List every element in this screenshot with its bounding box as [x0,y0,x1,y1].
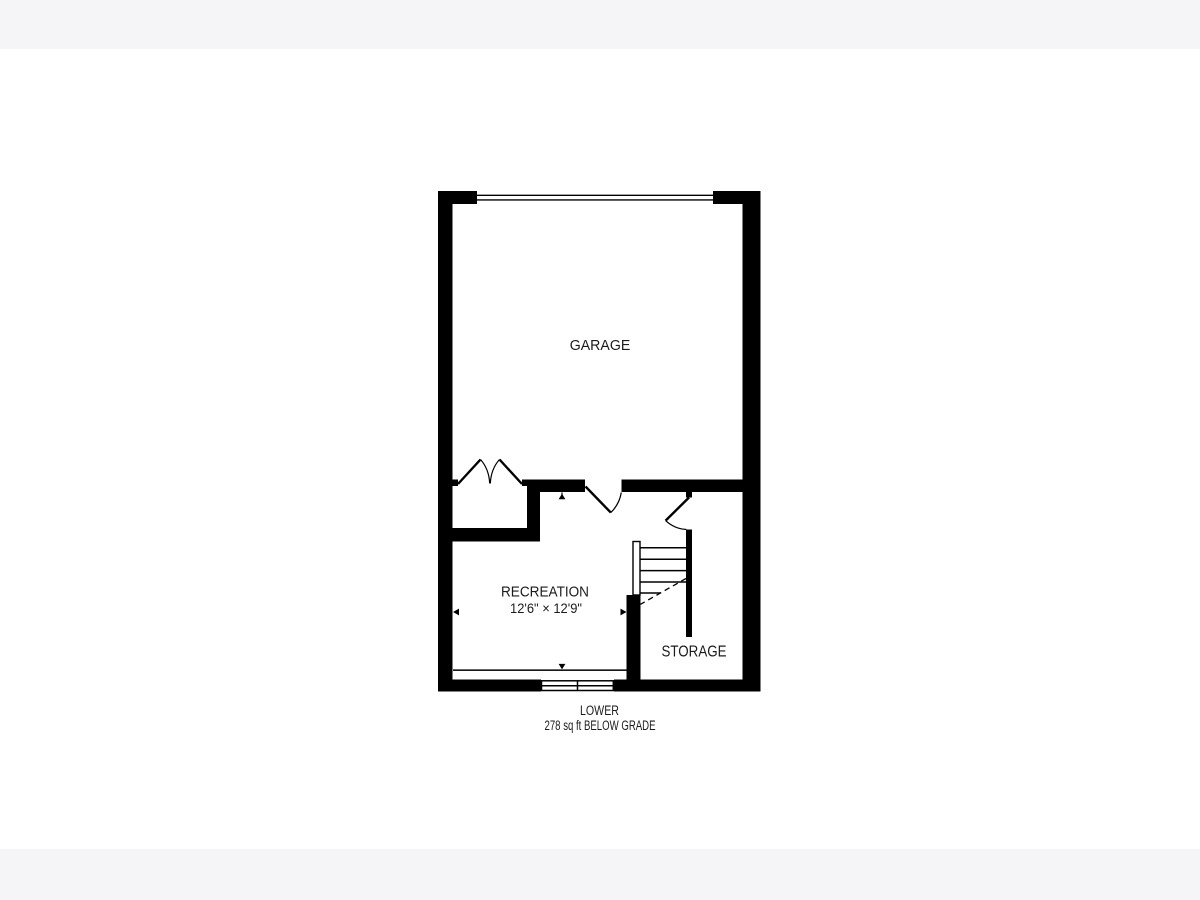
svg-text:278 sq ft BELOW GRADE: 278 sq ft BELOW GRADE [545,718,656,733]
svg-text:STORAGE: STORAGE [662,644,727,661]
svg-text:GARAGE: GARAGE [570,337,631,354]
svg-text:RECREATION: RECREATION [501,584,589,600]
svg-text:LOWER: LOWER [580,703,619,718]
svg-text:12'6" × 12'9": 12'6" × 12'9" [510,600,582,616]
